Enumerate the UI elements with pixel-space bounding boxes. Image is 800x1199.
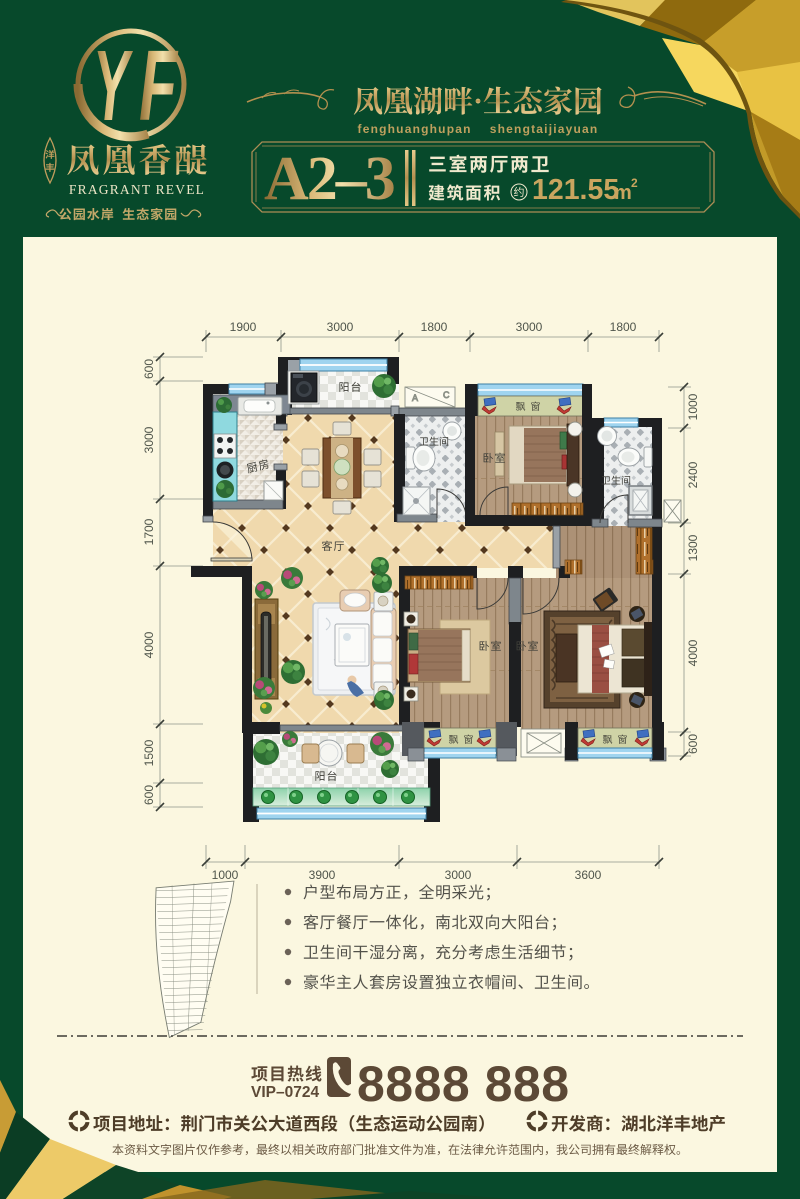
svg-text:1300: 1300: [686, 534, 700, 561]
svg-text:FRAGRANT REVEL: FRAGRANT REVEL: [69, 182, 205, 197]
svg-text:8888 888: 8888 888: [357, 1056, 570, 1112]
svg-text:2400: 2400: [686, 461, 700, 488]
svg-text:1000: 1000: [686, 393, 700, 420]
svg-text:F: F: [139, 30, 179, 142]
svg-text:3000: 3000: [142, 426, 156, 453]
svg-text:2: 2: [631, 176, 638, 190]
svg-text:1900: 1900: [230, 320, 257, 334]
svg-text:1700: 1700: [142, 518, 156, 545]
svg-text:600: 600: [142, 359, 156, 379]
svg-text:3900: 3900: [309, 868, 336, 882]
svg-text:m: m: [614, 182, 632, 204]
svg-text:121.55: 121.55: [532, 174, 619, 206]
svg-text:1800: 1800: [610, 320, 637, 334]
svg-text:4000: 4000: [142, 631, 156, 658]
svg-text:fenghuanghupan shengtaijiay: fenghuanghupan shengtaijiayuan: [358, 122, 599, 136]
svg-text:1800: 1800: [421, 320, 448, 334]
svg-text:1000: 1000: [212, 868, 239, 882]
svg-text:3600: 3600: [575, 868, 602, 882]
svg-text:1500: 1500: [142, 739, 156, 766]
svg-text:A2–3: A2–3: [264, 145, 394, 213]
svg-text:C: C: [443, 390, 450, 400]
svg-text:A: A: [412, 393, 418, 403]
svg-text:600: 600: [142, 785, 156, 805]
svg-text:4000: 4000: [686, 639, 700, 666]
svg-text:3000: 3000: [327, 320, 354, 334]
svg-text:600: 600: [686, 734, 700, 754]
svg-text:VIP–0724: VIP–0724: [251, 1084, 319, 1101]
svg-text:3000: 3000: [445, 868, 472, 882]
svg-text:Y: Y: [93, 30, 133, 142]
svg-text:3000: 3000: [516, 320, 543, 334]
